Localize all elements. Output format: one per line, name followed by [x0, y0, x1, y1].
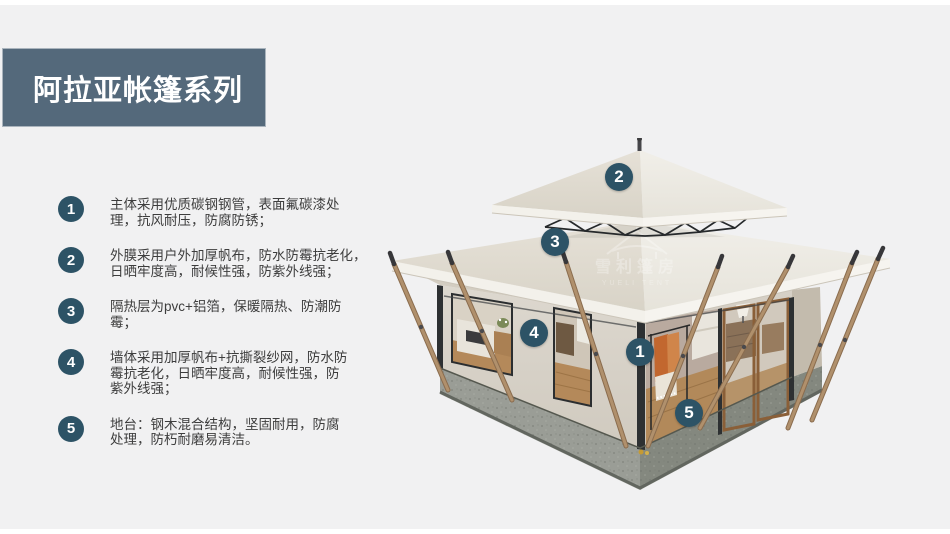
feature-item: 5 地台：钢木混合结构，坚固耐用，防腐处理，防朽耐磨易清洁。	[58, 417, 398, 448]
feature-text-line: 紫外线强；	[110, 381, 347, 397]
feature-text-line: 霉；	[110, 315, 341, 331]
feature-text-line: 隔热层为pvc+铝箔，保暖隔热、防潮防	[110, 299, 341, 315]
feature-item: 1 主体采用优质碳钢钢管，表面氟碳漆处理，抗风耐压，防腐防锈；	[58, 197, 398, 228]
feature-text: 隔热层为pvc+铝箔，保暖隔热、防潮防霉；	[110, 299, 341, 330]
page-title: 阿拉亚帐篷系列	[33, 67, 243, 109]
feature-number-badge: 4	[58, 349, 84, 375]
feature-number-badge: 2	[58, 247, 84, 273]
feature-text-line: 主体采用优质碳钢钢管，表面氟碳漆处	[110, 197, 340, 213]
feature-text: 主体采用优质碳钢钢管，表面氟碳漆处理，抗风耐压，防腐防锈；	[110, 197, 340, 228]
watermark-cn: 雪利篷房	[595, 257, 679, 276]
feature-text-line: 日晒牢度高，耐候性强，防紫外线强；	[110, 264, 367, 280]
feature-number-badge: 3	[58, 298, 84, 324]
feature-item: 2 外膜采用户外加厚帆布，防水防霉抗老化，日晒牢度高，耐候性强，防紫外线强；	[58, 248, 398, 279]
title-banner: 阿拉亚帐篷系列	[2, 48, 266, 127]
slide: { "slide": { "background": "#f1f1f2", "t…	[0, 0, 950, 534]
corner-foot	[639, 450, 644, 455]
feature-text-line: 外膜采用户外加厚帆布，防水防霉抗老化，	[110, 248, 367, 264]
feature-number-badge: 1	[58, 196, 84, 222]
feature-text-line: 处理，防朽耐磨易清洁。	[110, 432, 340, 448]
feature-text: 墙体采用加厚帆布+抗撕裂纱网，防水防霉抗老化，日晒牢度高，耐候性强，防紫外线强；	[110, 350, 347, 397]
roof-finial	[638, 140, 642, 151]
feature-item: 3 隔热层为pvc+铝箔，保暖隔热、防潮防霉；	[58, 299, 398, 330]
bottom-margin-strip	[0, 529, 950, 534]
tent-render: 雪利篷房 YUELI TENT	[385, 138, 900, 498]
tent-illustration: 雪利篷房 YUELI TENT	[385, 138, 900, 498]
watermark-en: YUELI TENT	[602, 280, 672, 287]
feature-text-line: 理，抗风耐压，防腐防锈；	[110, 213, 340, 229]
feature-item: 4 墙体采用加厚帆布+抗撕裂纱网，防水防霉抗老化，日晒牢度高，耐候性强，防紫外线…	[58, 350, 398, 397]
feature-list: 1 主体采用优质碳钢钢管，表面氟碳漆处理，抗风耐压，防腐防锈； 2 外膜采用户外…	[58, 197, 398, 468]
feature-text-line: 霉抗老化，日晒牢度高，耐候性强，防	[110, 366, 347, 382]
feature-text-line: 地台：钢木混合结构，坚固耐用，防腐	[110, 417, 340, 433]
feature-text: 外膜采用户外加厚帆布，防水防霉抗老化，日晒牢度高，耐候性强，防紫外线强；	[110, 248, 367, 279]
corner-foot	[645, 451, 649, 455]
feature-text-line: 墙体采用加厚帆布+抗撕裂纱网，防水防	[110, 350, 347, 366]
feature-number-badge: 5	[58, 416, 84, 442]
top-margin-strip	[0, 0, 950, 5]
feature-text: 地台：钢木混合结构，坚固耐用，防腐处理，防朽耐磨易清洁。	[110, 417, 340, 448]
upper-roof	[492, 138, 787, 227]
